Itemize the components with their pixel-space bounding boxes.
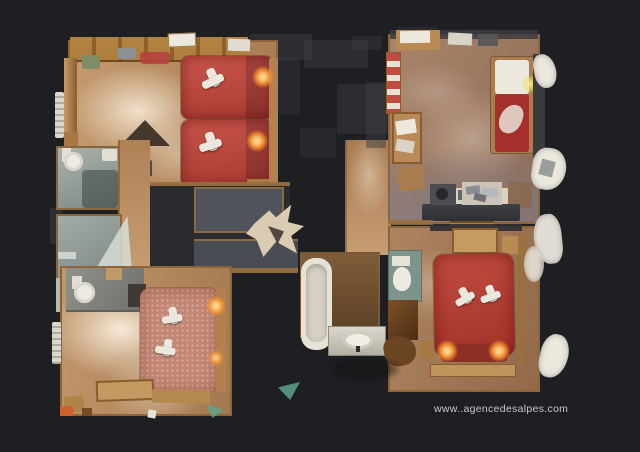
foot-bench	[430, 364, 516, 377]
toilet	[74, 282, 95, 303]
mirror	[58, 252, 76, 259]
bedside-lamp-glow	[436, 340, 458, 362]
desk	[96, 379, 155, 402]
striped-cushions	[386, 52, 401, 114]
red-shelf-items	[140, 52, 170, 64]
toilet	[393, 267, 411, 291]
small-item-brown	[82, 408, 92, 416]
toilet-tank	[392, 256, 410, 266]
stove-burner	[436, 188, 448, 200]
small-item-orange	[60, 406, 73, 416]
radiator	[52, 322, 61, 364]
tap	[356, 346, 360, 352]
floor-shadow	[332, 358, 398, 380]
bedside-lamp-glow	[488, 340, 510, 362]
corridor-right	[345, 140, 391, 255]
watermark-text: www..agencedesalpes.com	[434, 403, 568, 415]
white-box	[228, 39, 250, 52]
bedside-lamp-glow	[246, 130, 268, 152]
white-cabinet	[168, 33, 196, 48]
side-table	[420, 340, 434, 358]
bench-sofa	[452, 228, 498, 254]
ghost-wall-fragment	[366, 82, 386, 148]
wood-trim	[388, 220, 433, 225]
table-item	[395, 119, 417, 136]
left-wall-unit	[64, 58, 77, 134]
chair	[397, 165, 425, 191]
bedside-lamp-glow	[206, 296, 226, 316]
grey-box	[118, 48, 136, 59]
closet	[388, 300, 418, 340]
scan-fragment-white	[524, 246, 544, 282]
white-box	[448, 32, 473, 45]
shelf	[106, 268, 122, 280]
bedside-lamp-glow	[208, 350, 224, 366]
folded-towel	[154, 337, 180, 358]
bathtub-basin	[306, 264, 327, 342]
floorplan-image: www..agencedesalpes.com	[0, 0, 640, 452]
teal-fragment	[278, 382, 300, 400]
toilet	[64, 152, 83, 171]
wood-trim	[150, 182, 290, 186]
washbasin	[102, 149, 117, 161]
kitchen-counter	[422, 204, 520, 221]
white-box	[400, 31, 430, 44]
ghost-wall-fragment	[352, 36, 382, 50]
small-item-white	[147, 409, 156, 418]
ghost-wall-fragment	[300, 128, 336, 158]
floor-shadow	[82, 170, 118, 208]
dark-item	[478, 34, 498, 46]
radiator	[55, 92, 64, 138]
bench	[152, 389, 210, 403]
green-item	[82, 55, 100, 69]
scan-fragment-white	[536, 332, 573, 381]
bedside-lamp-glow	[252, 66, 274, 88]
